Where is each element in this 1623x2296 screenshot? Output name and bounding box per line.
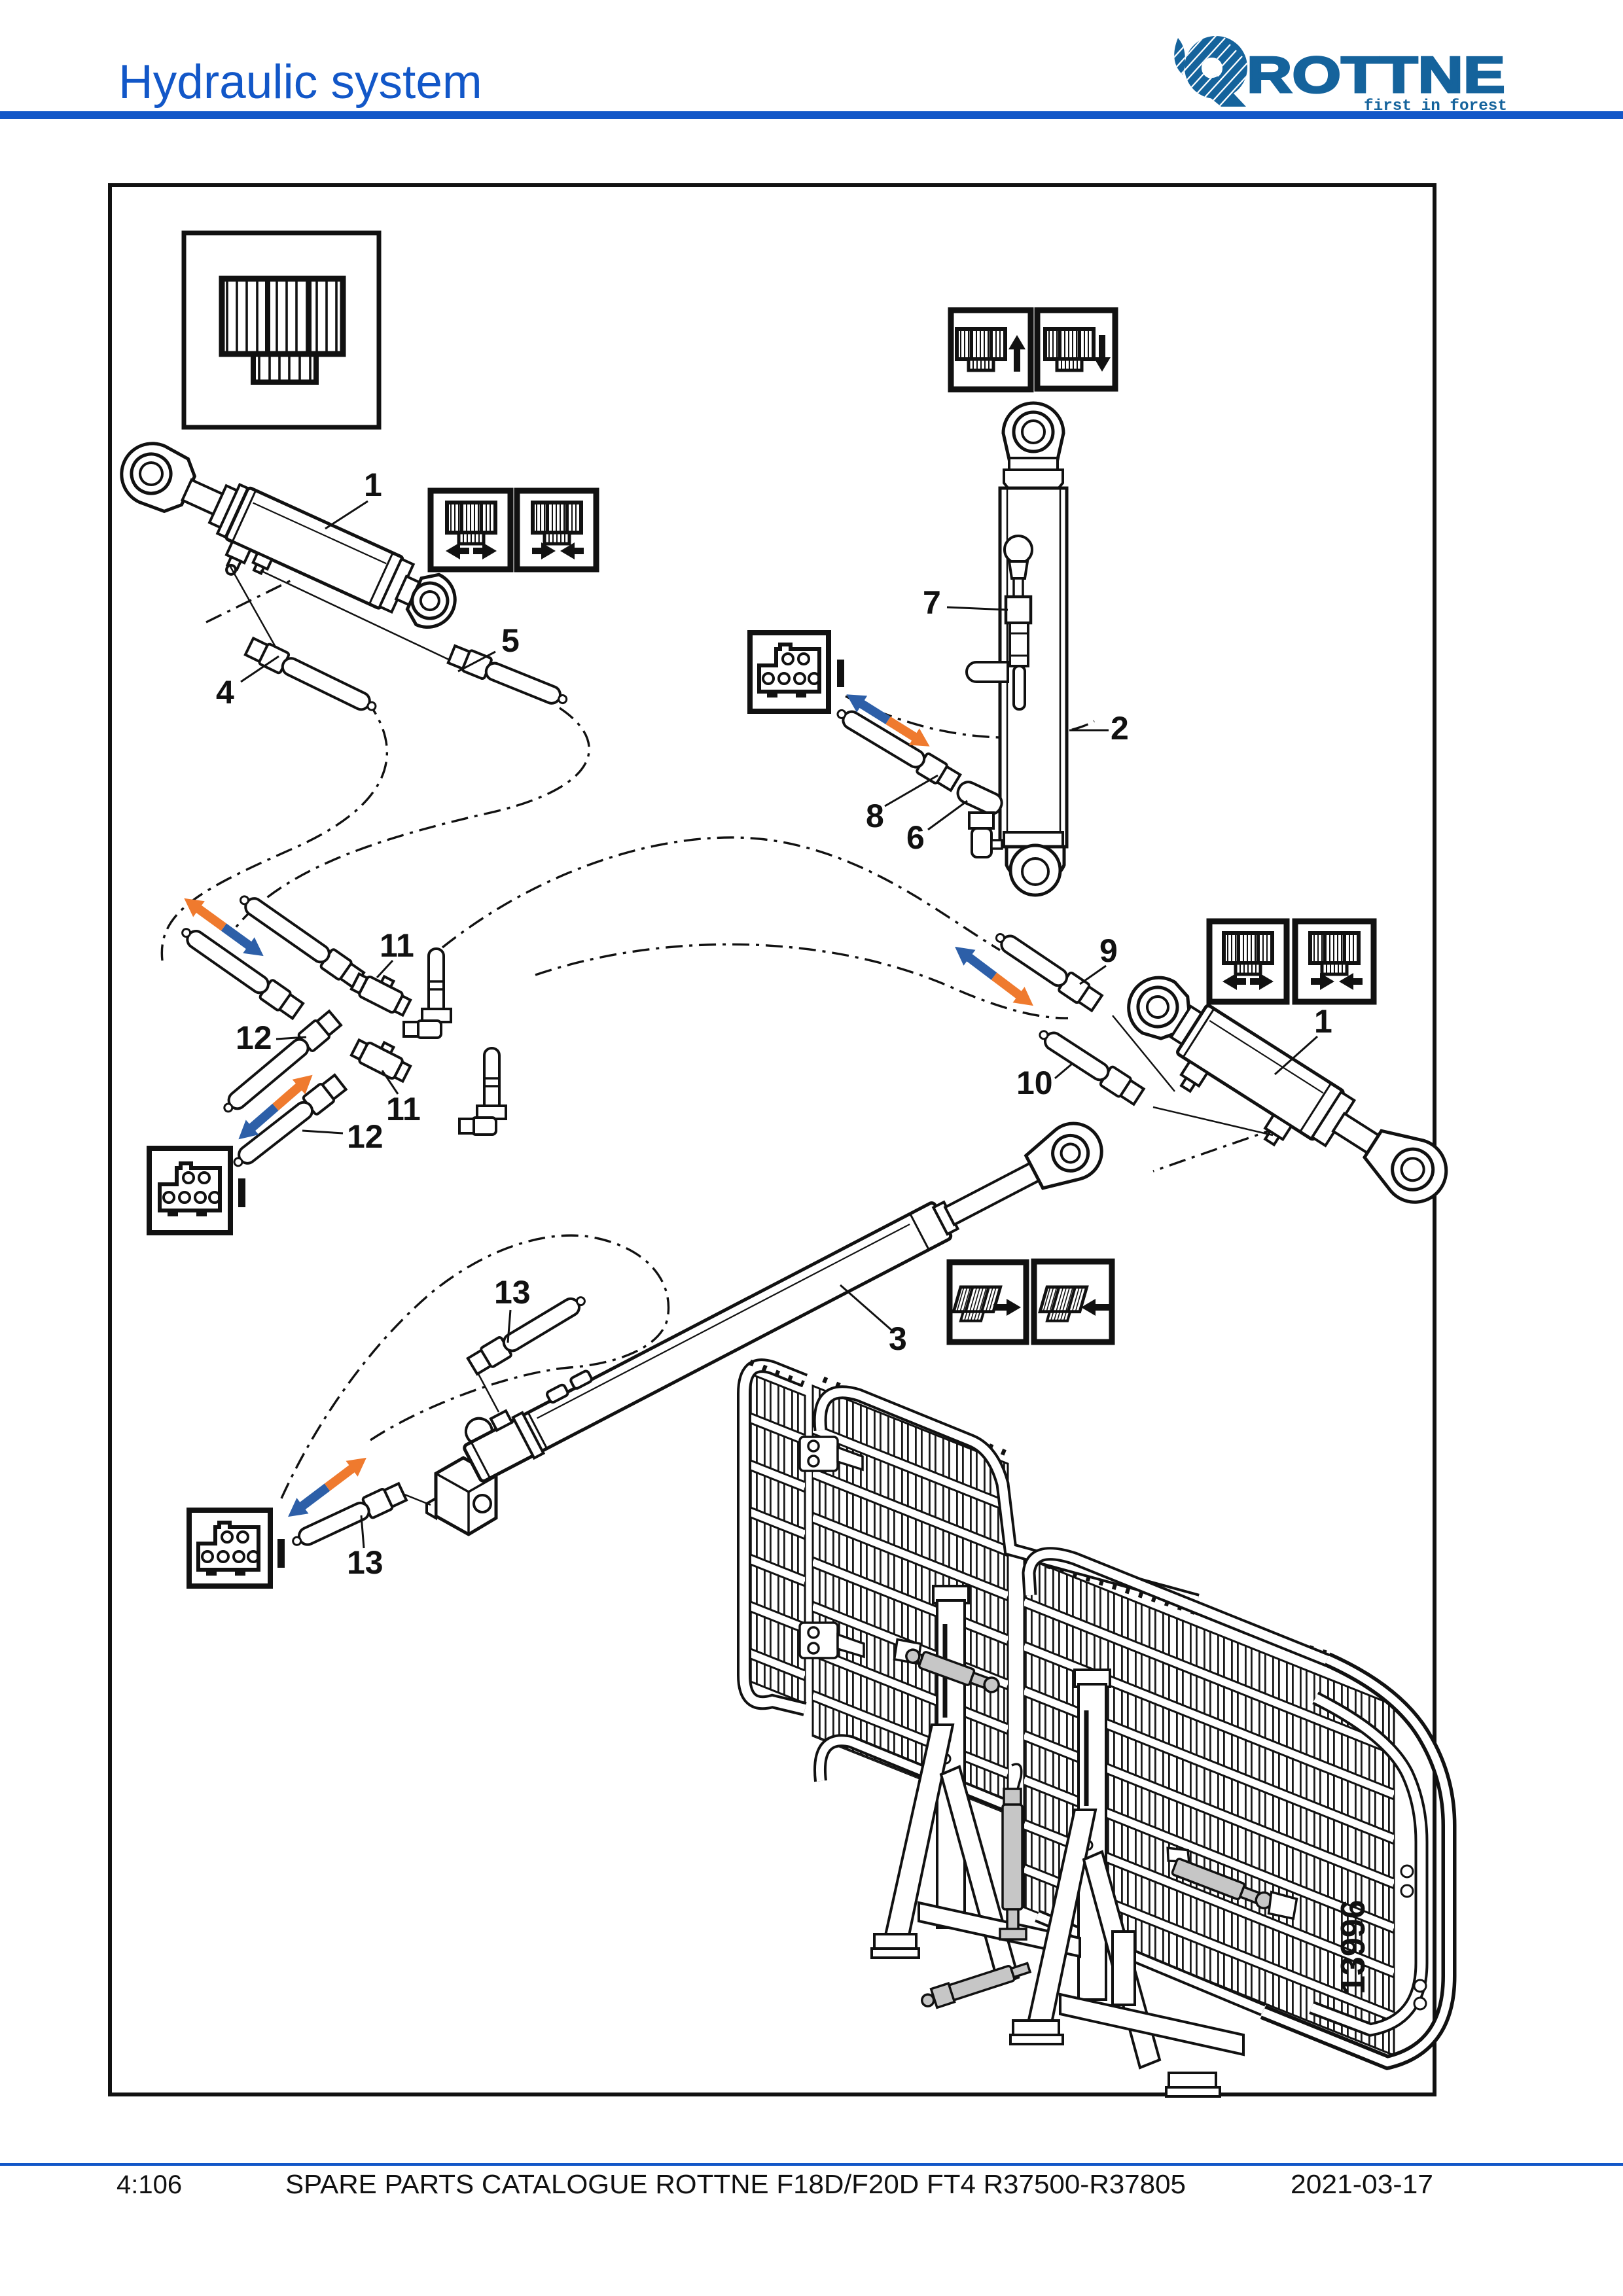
svg-text:SPARE PARTS CATALOGUE ROTTNE F: SPARE PARTS CATALOGUE ROTTNE F18D/F20D F… — [285, 2169, 1186, 2199]
svg-text:1: 1 — [364, 467, 382, 503]
svg-text:4:106: 4:106 — [116, 2170, 182, 2199]
svg-text:11: 11 — [380, 927, 414, 964]
svg-text:13: 13 — [347, 1544, 383, 1581]
svg-text:1: 1 — [1314, 1003, 1332, 1040]
svg-text:6: 6 — [906, 819, 925, 856]
svg-text:first in forest: first in forest — [1364, 97, 1507, 115]
svg-text:13996: 13996 — [1334, 1899, 1372, 1994]
svg-text:10: 10 — [1016, 1065, 1053, 1101]
svg-text:2021-03-17: 2021-03-17 — [1291, 2169, 1433, 2199]
svg-text:11: 11 — [386, 1091, 421, 1127]
svg-text:7: 7 — [923, 584, 941, 621]
svg-text:5: 5 — [501, 622, 520, 659]
svg-text:Hydraulic system: Hydraulic system — [118, 56, 482, 109]
svg-text:3: 3 — [889, 1320, 907, 1357]
svg-text:2: 2 — [1111, 710, 1129, 747]
svg-text:12: 12 — [347, 1118, 383, 1155]
svg-text:13: 13 — [494, 1274, 531, 1311]
svg-text:12: 12 — [236, 1019, 272, 1056]
svg-text:9: 9 — [1099, 932, 1118, 969]
svg-text:4: 4 — [216, 674, 234, 711]
svg-text:ROTTNE: ROTTNE — [1247, 46, 1505, 103]
svg-text:8: 8 — [866, 798, 884, 834]
